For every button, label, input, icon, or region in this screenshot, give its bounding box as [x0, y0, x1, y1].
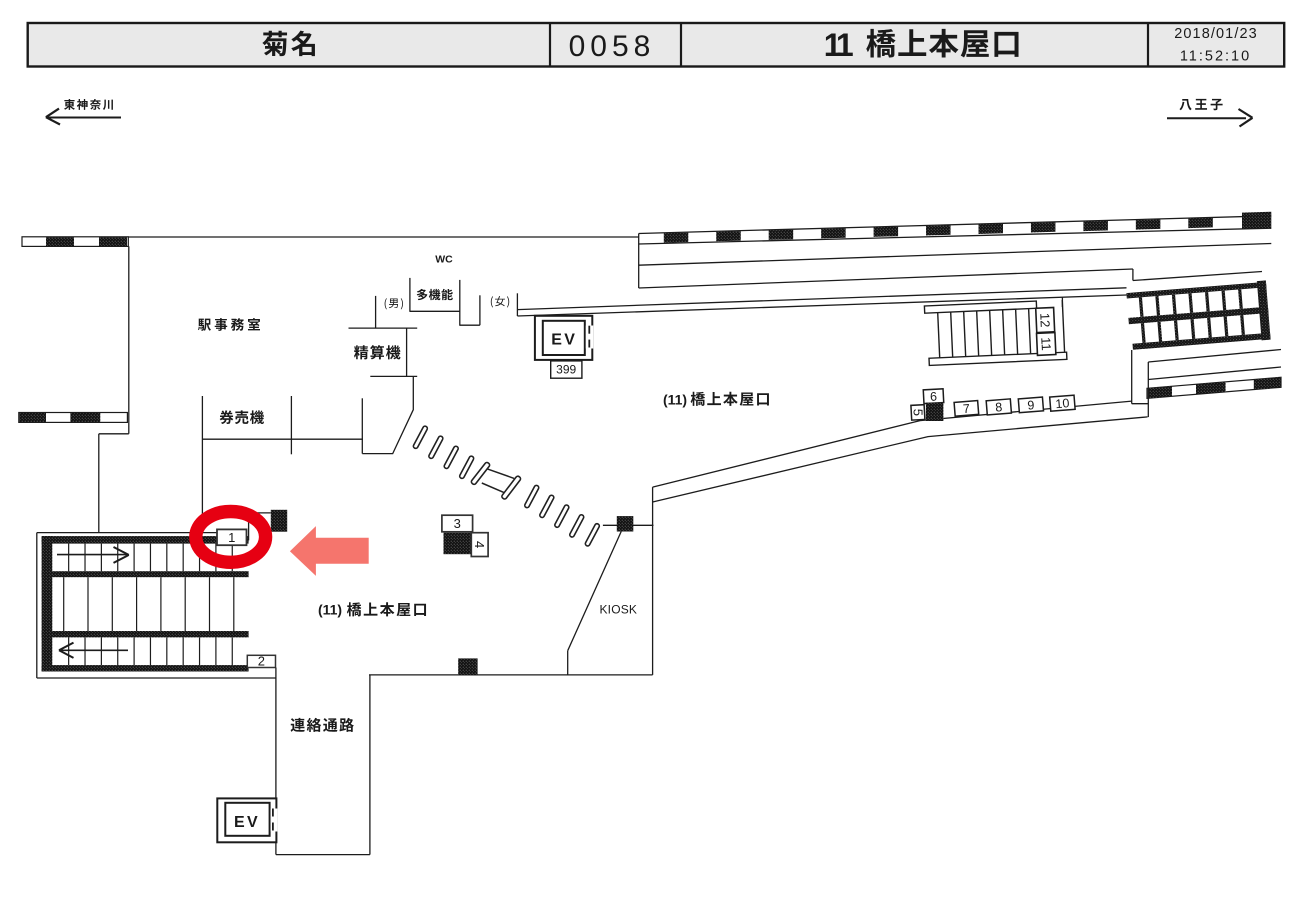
svg-text:3: 3 [454, 516, 461, 531]
svg-text:2018/01/23: 2018/01/23 [1174, 26, 1258, 42]
svg-text:1: 1 [228, 530, 235, 545]
svg-text:11: 11 [824, 27, 853, 63]
svg-text:2: 2 [258, 653, 265, 668]
svg-text:6: 6 [930, 390, 938, 404]
svg-text:399: 399 [556, 363, 576, 377]
svg-text:10: 10 [1055, 396, 1070, 411]
svg-text:5: 5 [910, 409, 925, 416]
svg-text:11: 11 [1038, 337, 1054, 351]
svg-text:12: 12 [1037, 313, 1053, 328]
svg-text:0058: 0058 [569, 30, 656, 63]
svg-text:9: 9 [1027, 398, 1035, 413]
svg-text:7: 7 [962, 402, 970, 417]
svg-text:11:52:10: 11:52:10 [1180, 49, 1251, 65]
svg-text:WC: WC [435, 254, 453, 266]
svg-text:KIOSK: KIOSK [599, 603, 637, 617]
svg-text:8: 8 [995, 400, 1003, 415]
svg-text:EV: EV [234, 814, 260, 831]
svg-text:4: 4 [472, 541, 487, 548]
svg-text:(11): (11) [318, 602, 342, 618]
svg-text:EV: EV [551, 331, 577, 348]
svg-text:(11): (11) [663, 392, 687, 408]
